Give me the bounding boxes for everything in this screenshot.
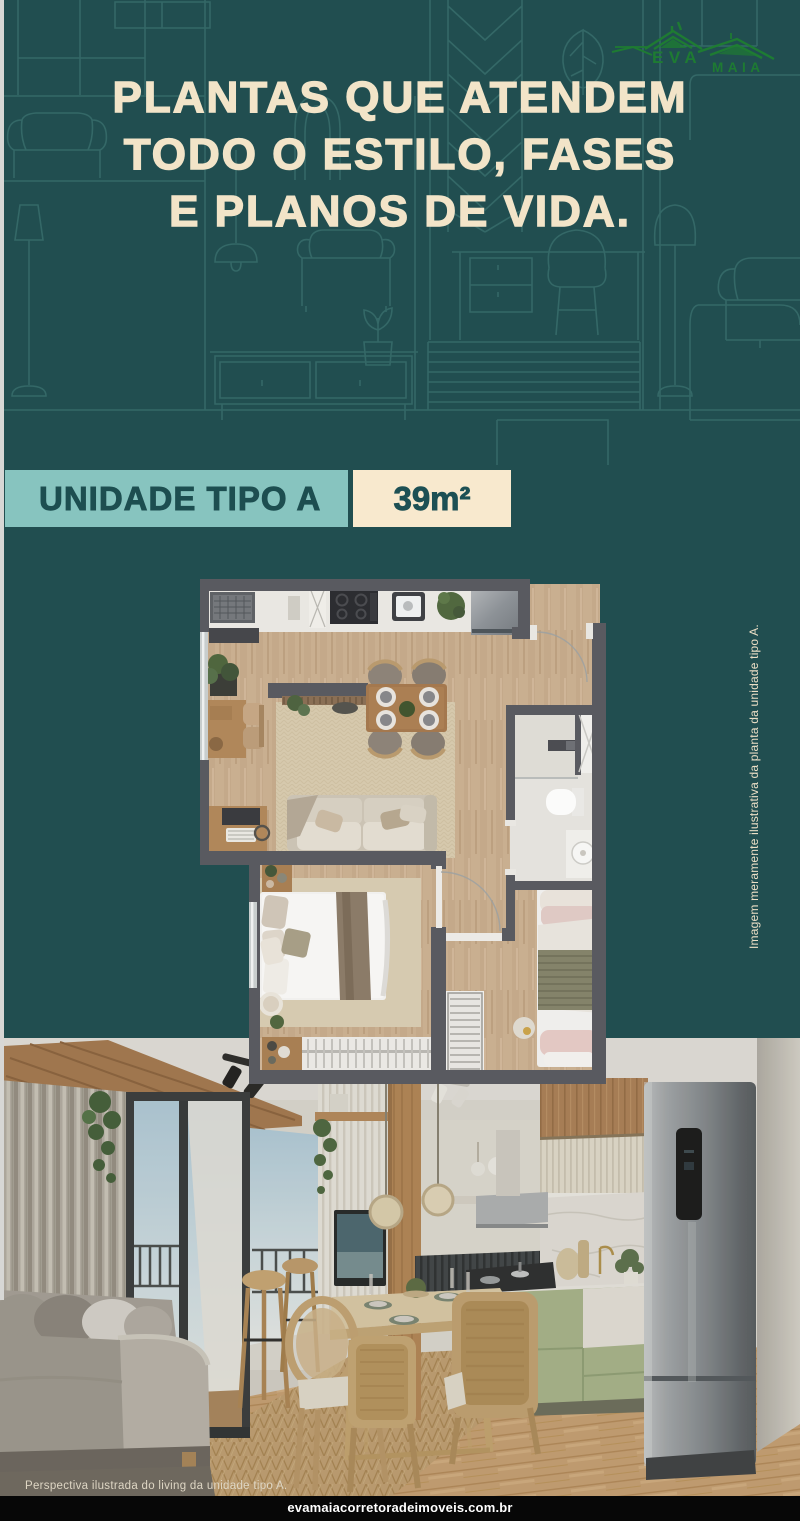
- svg-text:EVA: EVA: [652, 48, 702, 67]
